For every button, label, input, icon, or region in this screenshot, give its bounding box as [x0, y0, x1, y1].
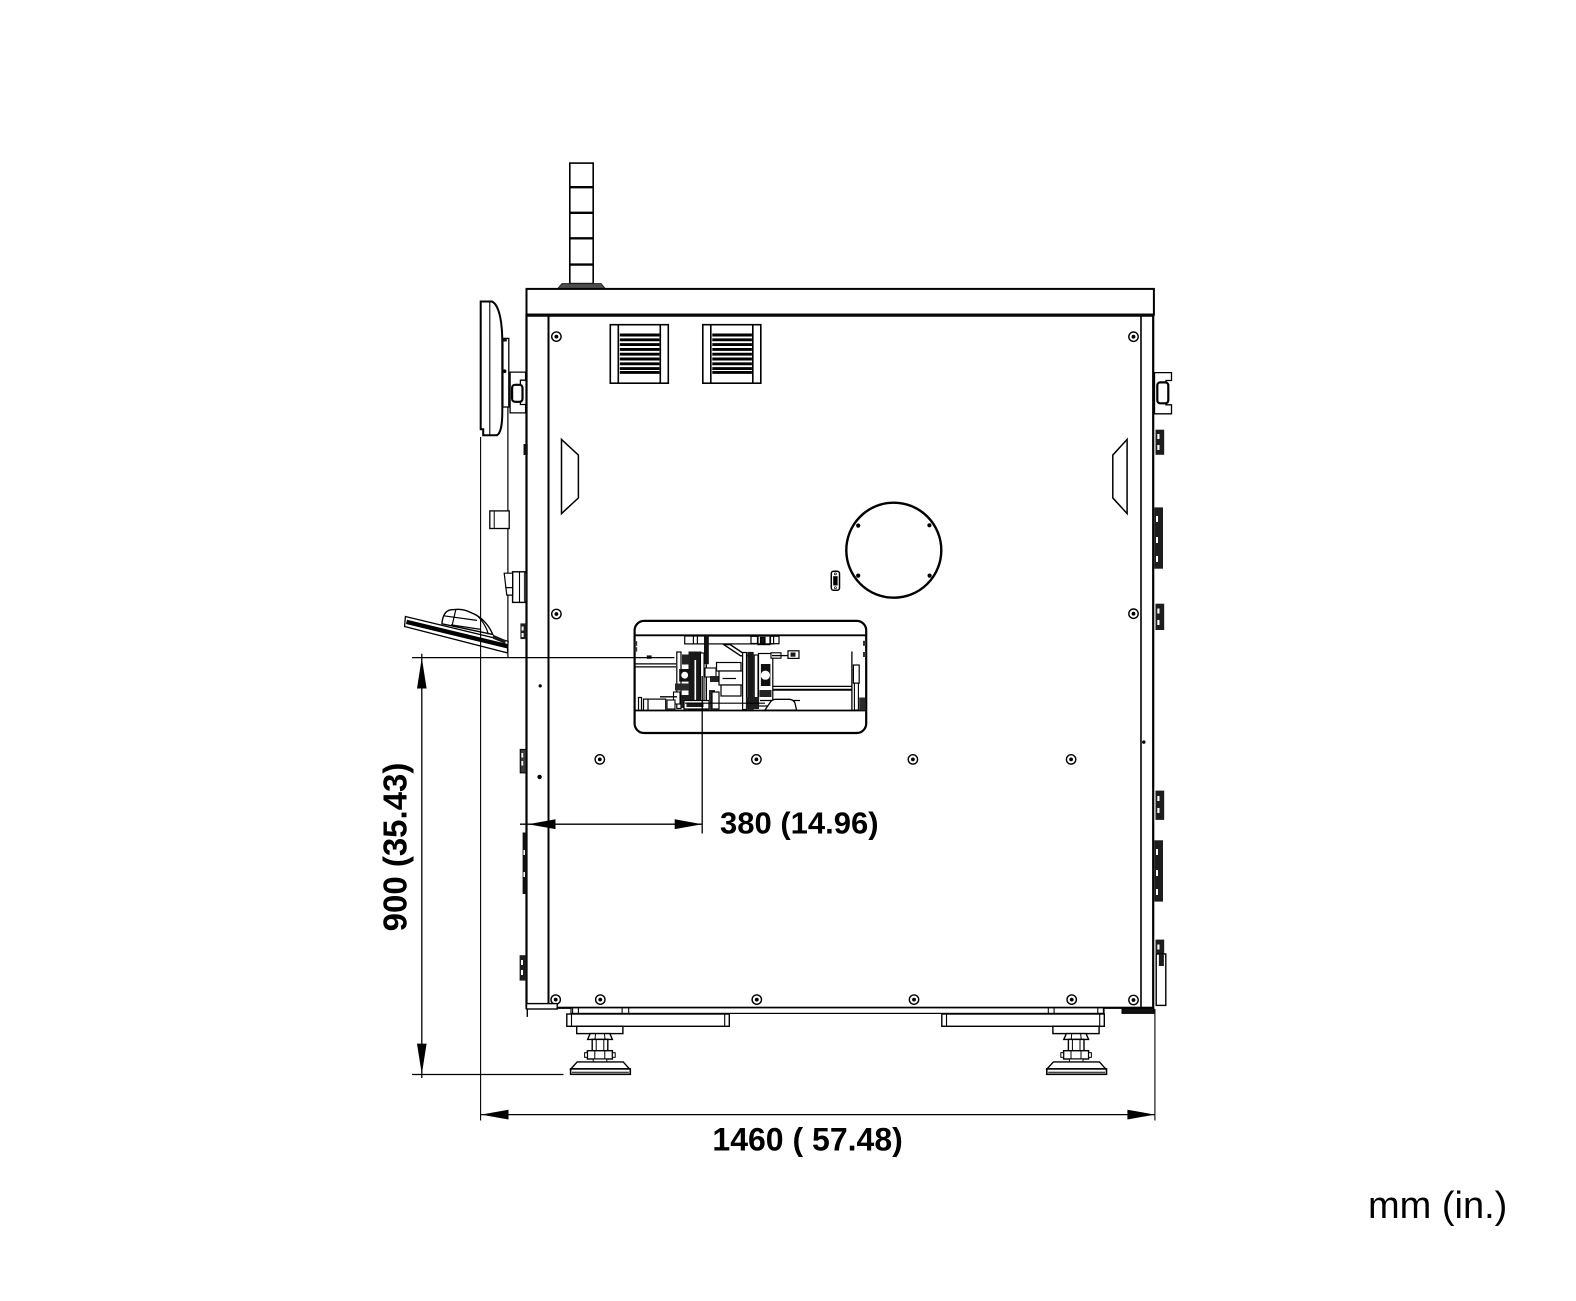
svg-text:900 (35.43): 900 (35.43)	[377, 763, 414, 932]
svg-text:1460 ( 57.48): 1460 ( 57.48)	[712, 1122, 902, 1158]
svg-text:380 (14.96): 380 (14.96)	[720, 806, 879, 841]
svg-text:mm (in.): mm (in.)	[1368, 1185, 1507, 1227]
